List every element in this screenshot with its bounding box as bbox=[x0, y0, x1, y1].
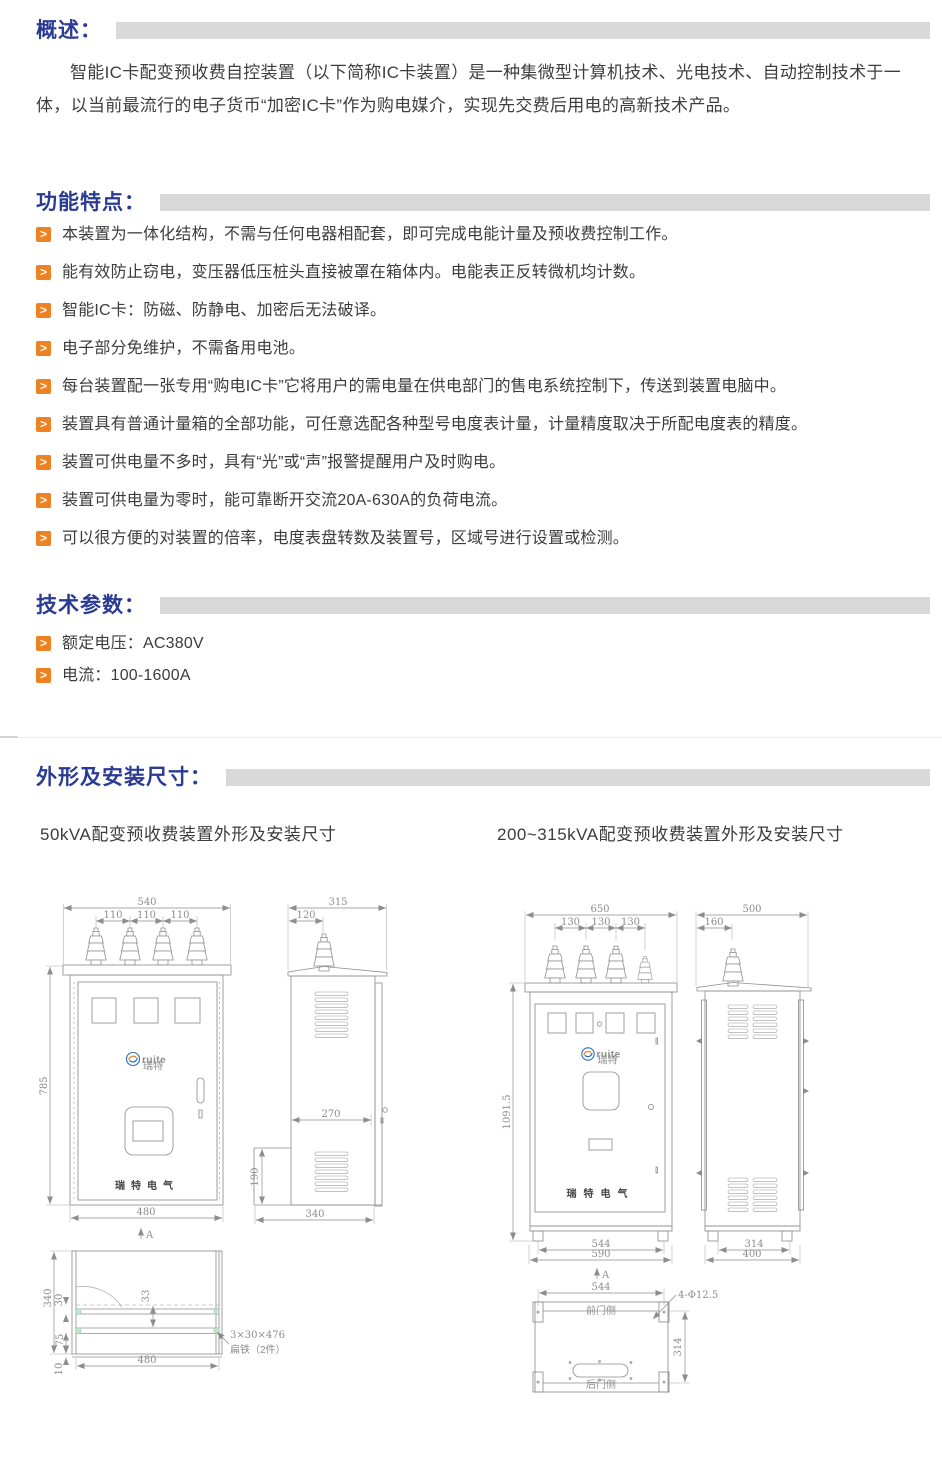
feature-text: 能有效防止窃电，变压器低压桩头直接被罩在箱体内。电能表正反转微机均计数。 bbox=[62, 264, 645, 281]
section-arrow-label: A bbox=[601, 1270, 610, 1281]
right-drawing-caption: 200~315kVA配变预收费装置外形及安装尺寸 bbox=[497, 820, 844, 845]
feature-item: >可以很方便的对装置的倍率，电度表盘转数及装置号，区域号进行设置或检测。 bbox=[36, 530, 918, 547]
overview-paragraph: 智能IC卡配变预收费自控装置（以下简称IC卡装置）是一种集微型计算机技术、光电技… bbox=[36, 56, 910, 122]
brand-text: 瑞特电气 bbox=[567, 1187, 635, 1200]
dimensions-title-bar bbox=[226, 769, 930, 786]
spec-item: >额定电压：AC380V bbox=[36, 635, 918, 653]
feature-item: >电子部分免维护，不需备用电池。 bbox=[36, 340, 918, 357]
product-page: 概述： 智能IC卡配变预收费自控装置（以下简称IC卡装置）是一种集微型计算机技术… bbox=[0, 0, 942, 1462]
feature-text: 装置具有普通计量箱的全部功能，可任意选配各种型号电度表计量，计量精度取决于所配电… bbox=[62, 416, 807, 433]
feature-text: 装置可供电量不多时，具有“光”或“声”报警提醒用户及时购电。 bbox=[62, 454, 505, 471]
louver-vents-bottom bbox=[728, 1178, 777, 1212]
feature-text: 智能IC卡：防磁、防静电、加密后无法破译。 bbox=[62, 302, 386, 319]
dim-label: 340 bbox=[43, 1288, 54, 1307]
drawing-50kva: ruite 瑞特 瑞特电气 540 110 110 110 785 bbox=[30, 888, 460, 1433]
section-arrow-label: A bbox=[145, 1230, 154, 1241]
feature-text: 装置可供电量为零时，能可靠断开交流20A-630A的负荷电流。 bbox=[62, 492, 507, 509]
dim-label: 650 bbox=[590, 904, 609, 915]
dim-label: 314 bbox=[673, 1337, 684, 1356]
door-handle bbox=[197, 1078, 204, 1103]
dim-label: 480 bbox=[136, 1207, 155, 1218]
dim-label: 480 bbox=[137, 1355, 156, 1366]
dim-label: 160 bbox=[704, 917, 723, 928]
back-door-side-label: 后门侧 bbox=[586, 1378, 616, 1391]
specs-title-bar bbox=[160, 597, 930, 614]
dim-label: 785 bbox=[39, 1076, 50, 1095]
feature-item: >本装置为一体化结构，不需与任何电器相配套，即可完成电能计量及预收费控制工作。 bbox=[36, 226, 918, 243]
dim-label: 130 bbox=[561, 917, 580, 928]
meter-windows bbox=[92, 998, 200, 1023]
features-title: 功能特点： bbox=[36, 186, 146, 216]
dim-label: 544 bbox=[591, 1282, 610, 1293]
feature-item: >每台装置配一张专用“购电IC卡”它将用户的需电量在供电部门的售电系统控制下，传… bbox=[36, 378, 918, 395]
overview-title-bar bbox=[116, 22, 930, 39]
bottom-view-315kva: 544 前门侧 后门侧 4-Φ12.5 314 bbox=[533, 1282, 718, 1392]
specs-title: 技术参数： bbox=[36, 589, 146, 619]
bottom-view-50kva: 340 30 75 10 33 480 3×30×476 扁铁（2件） bbox=[43, 1251, 286, 1375]
louver-vents-bottom bbox=[315, 1152, 348, 1192]
chevron-right-icon: > bbox=[36, 531, 51, 546]
logo-subtext: 瑞特 bbox=[598, 1055, 618, 1067]
ruite-logo: ruite 瑞特 bbox=[127, 1053, 167, 1073]
chevron-right-icon: > bbox=[36, 636, 51, 651]
front-view-50kva: ruite 瑞特 瑞特电气 540 110 110 110 785 bbox=[39, 897, 231, 1241]
dim-label: 400 bbox=[742, 1249, 761, 1260]
dim-label: 10 bbox=[54, 1363, 65, 1376]
logo-subtext: 瑞特 bbox=[143, 1061, 163, 1073]
chevron-right-icon: > bbox=[36, 303, 51, 318]
dim-label: 110 bbox=[103, 910, 122, 921]
section-divider bbox=[0, 737, 942, 738]
feature-text: 本装置为一体化结构，不需与任何电器相配套，即可完成电能计量及预收费控制工作。 bbox=[62, 226, 678, 243]
meter-viewing-window bbox=[125, 1107, 173, 1155]
keyhole bbox=[648, 1104, 653, 1109]
section-dimensions-header: 外形及安装尺寸： bbox=[36, 761, 930, 791]
chevron-right-icon: > bbox=[36, 341, 51, 356]
left-drawing-caption: 50kVA配变预收费装置外形及安装尺寸 bbox=[40, 820, 336, 845]
overview-title: 概述： bbox=[36, 14, 102, 44]
flat-iron-note: 3×30×476 bbox=[230, 1330, 285, 1341]
section-divider-cap bbox=[0, 736, 18, 738]
chevron-right-icon: > bbox=[36, 417, 51, 432]
chevron-right-icon: > bbox=[36, 227, 51, 242]
dim-label: 540 bbox=[137, 897, 156, 908]
cable-slot bbox=[573, 1364, 628, 1377]
dim-label: 315 bbox=[328, 897, 347, 908]
spec-text: 电流：100-1600A bbox=[62, 667, 191, 684]
section-specs-header: 技术参数： bbox=[36, 589, 930, 619]
dim-label: 30 bbox=[54, 1294, 65, 1307]
dim-label: 130 bbox=[591, 917, 610, 928]
front-door-side-label: 前门侧 bbox=[586, 1304, 616, 1317]
feature-text: 可以很方便的对装置的倍率，电度表盘转数及装置号，区域号进行设置或检测。 bbox=[62, 530, 629, 547]
front-view-315kva: ruite 瑞特 瑞特电气 650 130 130 130 1091.5 bbox=[502, 904, 677, 1281]
feature-item: >智能IC卡：防磁、防静电、加密后无法破译。 bbox=[36, 302, 918, 319]
dim-label: 33 bbox=[141, 1290, 152, 1303]
flat-iron-note: 扁铁（2件） bbox=[230, 1343, 286, 1356]
chevron-right-icon: > bbox=[36, 379, 51, 394]
spec-item: >电流：100-1600A bbox=[36, 667, 918, 685]
brand-text: 瑞特电气 bbox=[115, 1179, 179, 1192]
louver-vents-top bbox=[315, 992, 348, 1038]
chevron-right-icon: > bbox=[36, 455, 51, 470]
specs-list: >额定电压：AC380V >电流：100-1600A bbox=[36, 635, 918, 699]
dim-label: 270 bbox=[321, 1109, 340, 1120]
features-list: >本装置为一体化结构，不需与任何电器相配套，即可完成电能计量及预收费控制工作。 … bbox=[36, 226, 918, 568]
dim-label: 340 bbox=[305, 1209, 324, 1220]
feature-text: 每台装置配一张专用“购电IC卡”它将用户的需电量在供电部门的售电系统控制下，传送… bbox=[62, 378, 786, 395]
meter-viewing-window bbox=[583, 1072, 619, 1110]
dim-label: 1091.5 bbox=[502, 1095, 513, 1130]
chevron-right-icon: > bbox=[36, 265, 51, 280]
side-view-315kva: 500 160 314 400 bbox=[696, 904, 811, 1264]
section-features-header: 功能特点： bbox=[36, 186, 930, 216]
features-title-bar bbox=[160, 194, 930, 211]
chevron-right-icon: > bbox=[36, 668, 51, 683]
dim-label: 110 bbox=[137, 910, 156, 921]
louver-vents-top bbox=[728, 1005, 777, 1039]
dim-label: 500 bbox=[742, 904, 761, 915]
side-view-50kva: 315 120 270 190 340 bbox=[250, 897, 387, 1224]
dim-label: 75 bbox=[55, 1334, 66, 1347]
dim-label: 190 bbox=[250, 1167, 261, 1186]
spec-text: 额定电压：AC380V bbox=[62, 635, 204, 652]
feature-item: >装置具有普通计量箱的全部功能，可任意选配各种型号电度表计量，计量精度取决于所配… bbox=[36, 416, 918, 433]
ruite-logo: ruite 瑞特 bbox=[582, 1048, 621, 1067]
feature-item: >装置可供电量为零时，能可靠断开交流20A-630A的负荷电流。 bbox=[36, 492, 918, 509]
feature-text: 电子部分免维护，不需备用电池。 bbox=[62, 340, 305, 357]
feature-item: >装置可供电量不多时，具有“光”或“声”报警提醒用户及时购电。 bbox=[36, 454, 918, 471]
drawing-200-315kva: ruite 瑞特 瑞特电气 650 130 130 130 1091.5 bbox=[500, 888, 942, 1462]
mounting-holes-label: 4-Φ12.5 bbox=[678, 1290, 718, 1301]
dim-label: 590 bbox=[591, 1249, 610, 1260]
dimensions-title: 外形及安装尺寸： bbox=[36, 761, 212, 791]
dim-label: 130 bbox=[621, 917, 640, 928]
dim-label: 110 bbox=[170, 910, 189, 921]
chevron-right-icon: > bbox=[36, 493, 51, 508]
dim-label: 120 bbox=[296, 910, 315, 921]
section-overview-header: 概述： bbox=[36, 14, 930, 44]
feature-item: >能有效防止窃电，变压器低压桩头直接被罩在箱体内。电能表正反转微机均计数。 bbox=[36, 264, 918, 281]
